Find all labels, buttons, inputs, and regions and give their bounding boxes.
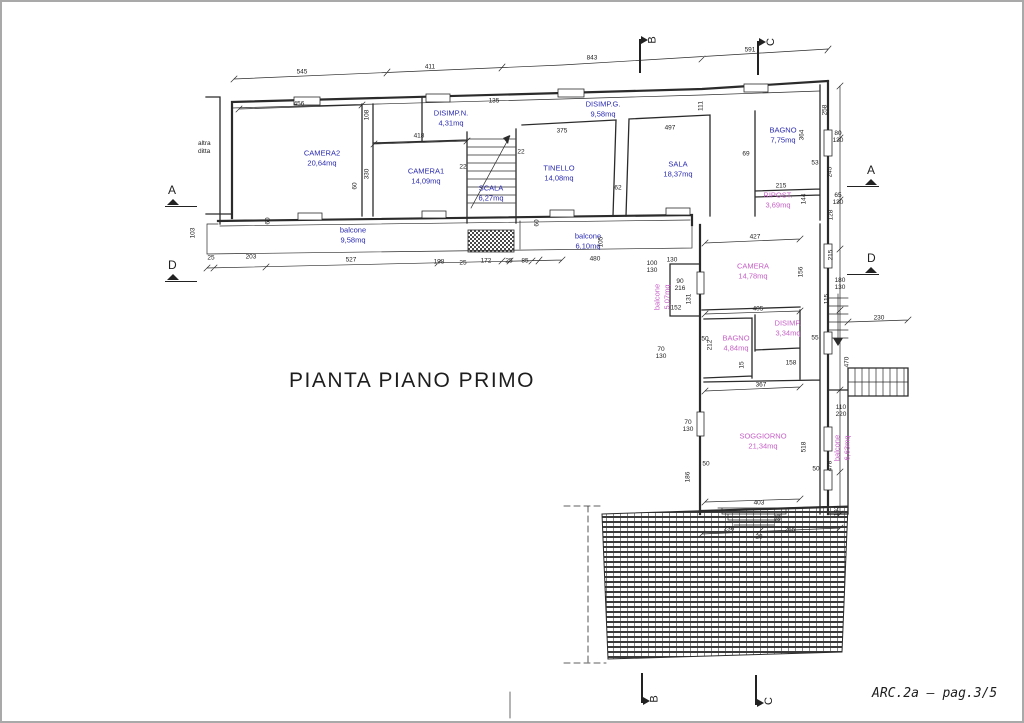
drawing-sheet: PIANTA PIANO PRIMO ARC.2a – pag.3/5 altr… (0, 0, 1024, 723)
room-name: balcone (832, 435, 842, 461)
room-name: SALA (663, 159, 692, 169)
section-marker: C (750, 32, 782, 80)
dimension-label: 128 (829, 210, 836, 221)
room-name: RIPOST. (763, 190, 792, 200)
dimension-label: 418 (414, 134, 425, 141)
room-area: 14,09mq (408, 176, 444, 186)
dimension-label: 22 (517, 150, 524, 157)
room-label: BAGNO 7,75mq (769, 125, 796, 145)
dimension-label: 470 (845, 357, 852, 368)
section-arrowhead-icon (757, 699, 764, 707)
room-name: CAMERA (737, 261, 769, 271)
dimension-label: 35 (776, 514, 783, 521)
room-name: SOGGIORNO (739, 431, 786, 441)
dimension-label: 105 (599, 237, 606, 248)
dimension-label: 545 (297, 70, 308, 77)
dimension-label: 53 (811, 161, 818, 168)
dimension-label: 60 (266, 217, 273, 224)
section-marker: D (847, 251, 883, 275)
dimension-label: 843 (587, 56, 598, 63)
dimension-label: 265 (785, 528, 796, 535)
room-area: 3,69mq (763, 200, 792, 210)
dimension-label: 156 (799, 267, 806, 278)
room-label: DISIMP. 3,34mq (775, 318, 802, 338)
room-label: CAMERA1 14,09mq (408, 166, 444, 186)
room-label: SALA 18,37mq (663, 159, 692, 179)
dimension-label: 367 (756, 383, 767, 390)
floorplan-linework (2, 2, 1024, 723)
section-marker: C (748, 672, 780, 720)
section-line (639, 39, 641, 73)
dimension-label: 60 (535, 219, 542, 226)
section-marker: B (634, 670, 666, 718)
dimension-label: 55 (811, 336, 818, 343)
room-area: 9,58mq (340, 235, 366, 245)
dimension-label: 203 (246, 255, 257, 262)
room-label: balcone 9,58mq (340, 225, 366, 245)
room-label: BAGNO 4,84mq (722, 333, 749, 353)
dimension-label: 193 (835, 506, 842, 517)
section-marker: A (847, 163, 883, 187)
room-label: SOGGIORNO 21,34mq (739, 431, 786, 451)
room-area: 9,58mq (586, 109, 621, 119)
dimension-label: 364 (800, 130, 807, 141)
section-marker: D (165, 258, 201, 282)
room-label: TINELLO 14,08mq (543, 163, 574, 183)
dimension-label: 478 (828, 461, 835, 472)
dimension-label: 215 (829, 250, 836, 261)
dimension-label: 258 (823, 105, 830, 116)
section-arrowhead-icon (641, 36, 648, 44)
dimension-label: 456 (294, 102, 305, 109)
room-name: DISIMP.N. (434, 108, 468, 118)
section-marker: A (165, 183, 201, 207)
room-name: BAGNO (769, 125, 796, 135)
dimension-label: 70 130 (656, 347, 667, 361)
room-area: 4,84mq (722, 343, 749, 353)
dimension-label: 22 (459, 165, 466, 172)
section-arrowhead-icon (643, 697, 650, 705)
dimension-label: 60 (353, 182, 360, 189)
dimension-label: 186 (686, 472, 693, 483)
section-arrow-icon (165, 197, 197, 207)
room-label: balcone 6,63mq (832, 435, 852, 461)
dimension-label: 108 (365, 110, 372, 121)
dimension-label: 131 (687, 294, 694, 305)
room-name: TINELLO (543, 163, 574, 173)
section-arrow-icon (847, 177, 879, 187)
room-name: DISIMP. (775, 318, 802, 328)
room-name: balcone (652, 284, 662, 310)
dimension-label: 103 (191, 228, 198, 239)
dimension-label: 403 (754, 501, 765, 508)
dimension-label: 405 (753, 307, 764, 314)
dimension-label: 110 220 (836, 405, 847, 419)
dimension-label: 158 (786, 361, 797, 368)
dimension-label: 212 (708, 340, 715, 351)
dimension-label: 130 (667, 258, 678, 265)
section-arrowhead-icon (759, 38, 766, 46)
section-letter: A (867, 163, 883, 177)
section-arrow-icon (165, 272, 197, 282)
dimension-label: 28 (755, 535, 762, 542)
dimension-label: 25 (207, 256, 214, 263)
room-name: CAMERA2 (304, 148, 340, 158)
section-letter: A (168, 183, 201, 197)
dimension-label: 111 (699, 101, 706, 111)
room-name: BAGNO (722, 333, 749, 343)
section-line (757, 41, 759, 75)
room-area: 20,64mq (304, 158, 340, 168)
dimension-label: 375 (557, 129, 568, 136)
room-label: balcone 5,07mq (652, 284, 672, 310)
room-area: 3,34mq (775, 328, 802, 338)
dimension-label: 152 (671, 306, 682, 313)
dimension-label: 411 (425, 65, 435, 72)
dimension-label: 135 (489, 99, 500, 106)
room-label: DISIMP.G. 9,58mq (586, 99, 621, 119)
room-label: SCALA 6,27mq (478, 183, 503, 203)
dimension-label: 198 (434, 260, 445, 267)
dimension-label: 62 (614, 186, 621, 193)
plan-title: PIANTA PIANO PRIMO (289, 369, 535, 393)
section-letter: D (168, 258, 201, 272)
room-name: balcone (340, 225, 366, 235)
dimension-label: 115 (825, 294, 832, 304)
room-name: DISIMP.G. (586, 99, 621, 109)
dimension-label: 70 130 (683, 420, 694, 434)
dimension-label: 236 (724, 527, 735, 534)
section-letter: C (765, 38, 777, 46)
room-area: 4,31mq (434, 118, 468, 128)
room-area: 18,37mq (663, 169, 692, 179)
dimension-label: 180 130 (835, 278, 846, 292)
dimension-label: 245 (828, 167, 835, 178)
section-arrow-icon (847, 265, 879, 275)
room-area: 7,75mq (769, 135, 796, 145)
dimension-label: 50 (702, 462, 709, 469)
dimension-label: 330 (365, 169, 372, 180)
room-label: DISIMP.N. 4,31mq (434, 108, 468, 128)
sheet-reference: ARC.2a – pag.3/5 (872, 686, 997, 701)
dimension-label: 427 (750, 235, 761, 242)
dimension-label: 230 (874, 316, 885, 323)
section-letter: B (649, 695, 661, 702)
dimension-label: 497 (665, 126, 676, 133)
room-name: CAMERA1 (408, 166, 444, 176)
dimension-label: 100 130 (647, 261, 658, 275)
dimension-label: 80 130 (833, 131, 844, 145)
dimension-label: 25 (459, 261, 466, 268)
dimension-label: 15 (740, 361, 747, 368)
dimension-label: 90 216 (675, 279, 686, 293)
room-area: 14,08mq (543, 173, 574, 183)
section-marker: B (632, 30, 664, 78)
dimension-label: 69 (742, 152, 749, 159)
dimension-label: 480 (590, 257, 601, 264)
room-area: 21,34mq (739, 441, 786, 451)
room-label: CAMERA 14,78mq (737, 261, 769, 281)
dimension-label: 215 (776, 184, 787, 191)
section-letter: B (647, 36, 659, 43)
dimension-label: 144 (802, 194, 809, 205)
dimension-label: 65 130 (833, 193, 844, 207)
room-area: 14,78mq (737, 271, 769, 281)
section-letter: C (763, 697, 775, 705)
room-area: 6,63mq (842, 435, 852, 461)
room-area: 6,27mq (478, 193, 503, 203)
dimension-label: 50 (812, 467, 819, 474)
room-label: RIPOST. 3,69mq (763, 190, 792, 210)
adjacent-property-note: altra ditta (198, 140, 211, 156)
dimension-label: 85 (521, 259, 528, 266)
section-letter: D (867, 251, 883, 265)
dimension-label: 172 (481, 259, 492, 266)
dimension-label: 518 (802, 442, 809, 453)
dimension-label: 25 (505, 259, 512, 266)
room-label: CAMERA2 20,64mq (304, 148, 340, 168)
room-name: SCALA (478, 183, 503, 193)
dimension-label: 527 (346, 258, 357, 265)
